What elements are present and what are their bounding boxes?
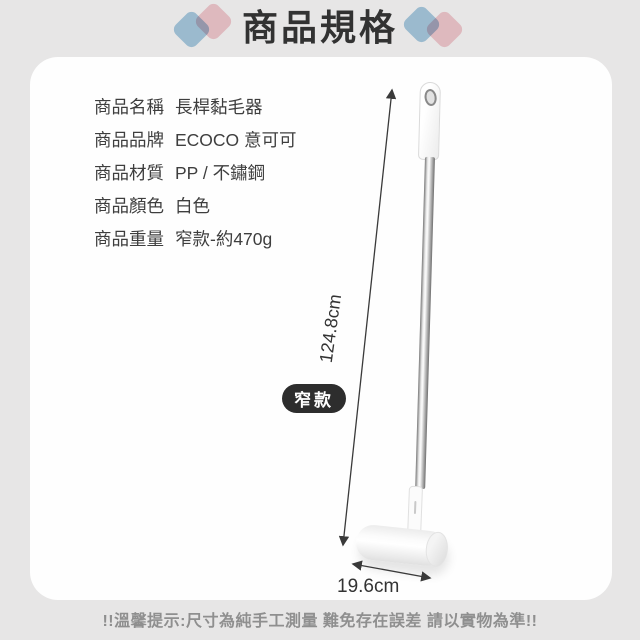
hanging-hole-icon bbox=[423, 88, 437, 107]
pole-connector bbox=[407, 486, 423, 536]
spec-row-weight: 商品重量 窄款-約470g bbox=[94, 222, 297, 255]
disclaimer-note: !!溫馨提示:尺寸為純手工測量 難免存在誤差 請以實物為準!! bbox=[0, 607, 640, 631]
spec-value: 白色 bbox=[175, 193, 210, 218]
spec-list: 商品名稱 長桿黏毛器 商品品牌 ECOCO 意可可 商品材質 PP / 不鏽鋼 … bbox=[94, 90, 297, 255]
spec-label: 商品材質 bbox=[94, 160, 164, 185]
spec-value: PP / 不鏽鋼 bbox=[175, 160, 265, 185]
diamond-decoration-left-icon bbox=[176, 4, 234, 52]
width-label: 19.6cm bbox=[337, 576, 399, 598]
spec-value: 長桿黏毛器 bbox=[175, 94, 263, 119]
spec-label: 商品重量 bbox=[94, 226, 164, 251]
spec-value: 窄款-約470g bbox=[175, 226, 272, 251]
spec-label: 商品名稱 bbox=[94, 94, 164, 119]
spec-row-name: 商品名稱 長桿黏毛器 bbox=[94, 90, 297, 123]
roller-handle bbox=[418, 82, 441, 161]
header: 商品規格 bbox=[0, 4, 640, 52]
page-title: 商品規格 bbox=[242, 4, 398, 52]
spec-row-material: 商品材質 PP / 不鏽鋼 bbox=[94, 156, 297, 189]
spec-row-brand: 商品品牌 ECOCO 意可可 bbox=[94, 123, 297, 156]
spec-value: ECOCO 意可可 bbox=[175, 127, 297, 152]
spec-row-color: 商品顏色 白色 bbox=[94, 189, 297, 222]
product-spec-page: 商品規格 商品名稱 長桿黏毛器 商品品牌 ECOCO 意可可 商品材質 PP /… bbox=[0, 0, 640, 640]
variant-badge: 窄款 bbox=[282, 384, 346, 413]
spec-label: 商品品牌 bbox=[94, 127, 164, 152]
connector-print bbox=[414, 501, 416, 514]
diamond-decoration-right-icon bbox=[406, 4, 464, 52]
spec-label: 商品顏色 bbox=[94, 193, 164, 218]
